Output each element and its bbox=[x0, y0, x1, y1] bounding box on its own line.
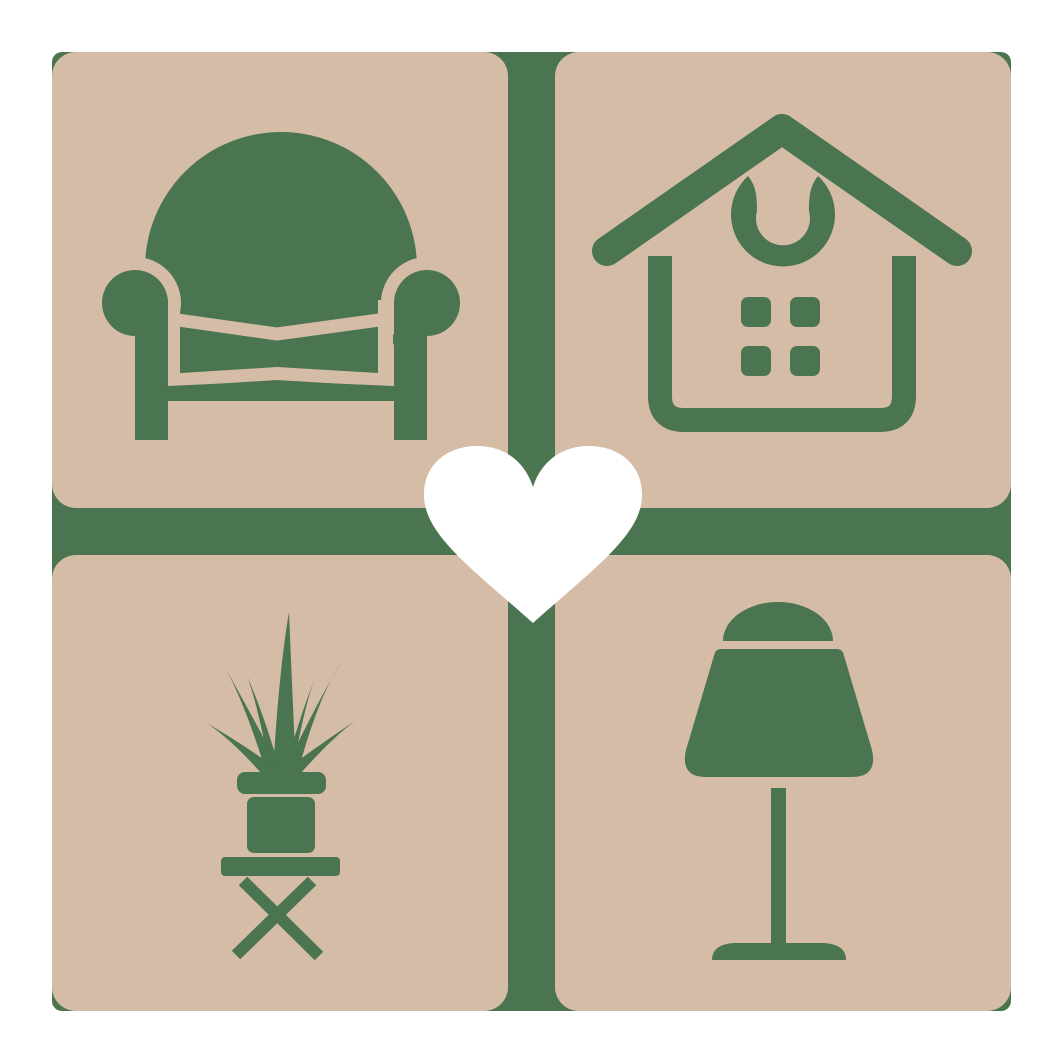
house-window-pane-1 bbox=[741, 297, 771, 327]
armchair-seam-lower bbox=[174, 374, 385, 381]
logo-canvas bbox=[0, 0, 1063, 1063]
lamp-stem bbox=[771, 788, 786, 946]
plant-pot-body bbox=[247, 797, 315, 853]
house-window-pane-3 bbox=[741, 346, 771, 376]
lamp-base bbox=[712, 943, 846, 960]
lamp-shade bbox=[685, 649, 873, 777]
armchair-underside-gap bbox=[170, 401, 392, 411]
house-window-pane-4 bbox=[790, 346, 820, 376]
house-window-pane-2 bbox=[790, 297, 820, 327]
armchair-left-leg bbox=[135, 300, 168, 440]
plant-pot-rim bbox=[237, 772, 326, 794]
armchair-right-leg bbox=[394, 300, 427, 440]
home-decor-logo bbox=[0, 0, 1063, 1063]
stool-top bbox=[221, 857, 340, 876]
